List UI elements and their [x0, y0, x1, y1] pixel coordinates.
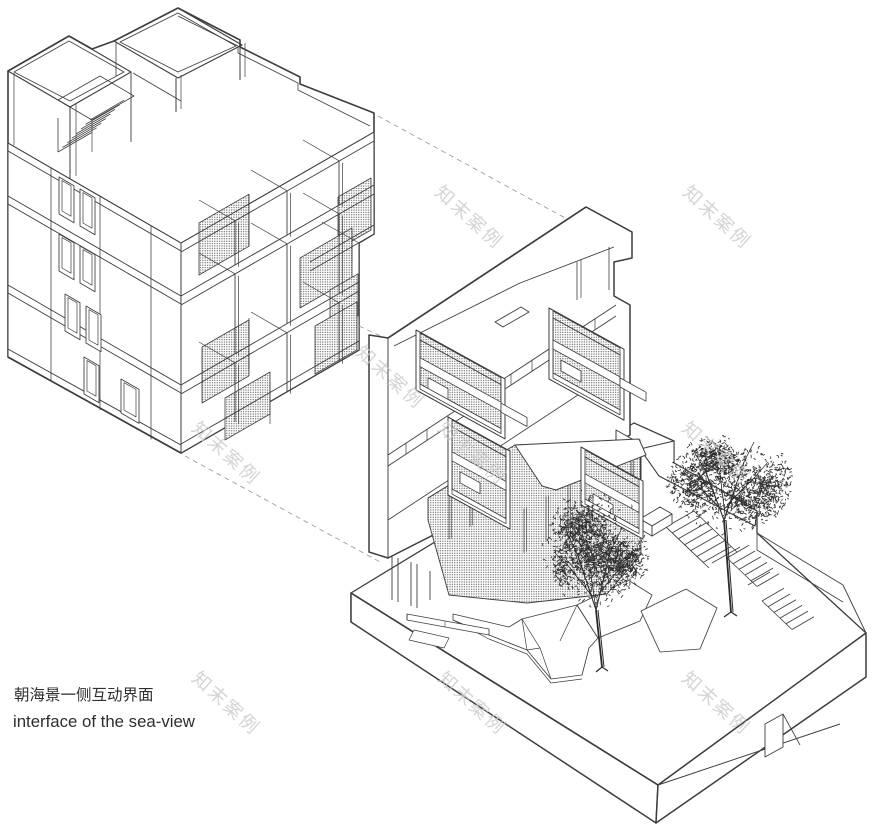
svg-text:interface of the sea-view: interface of the sea-view [13, 712, 196, 731]
svg-text:朝海景一侧互动界面: 朝海景一侧互动界面 [14, 686, 154, 704]
